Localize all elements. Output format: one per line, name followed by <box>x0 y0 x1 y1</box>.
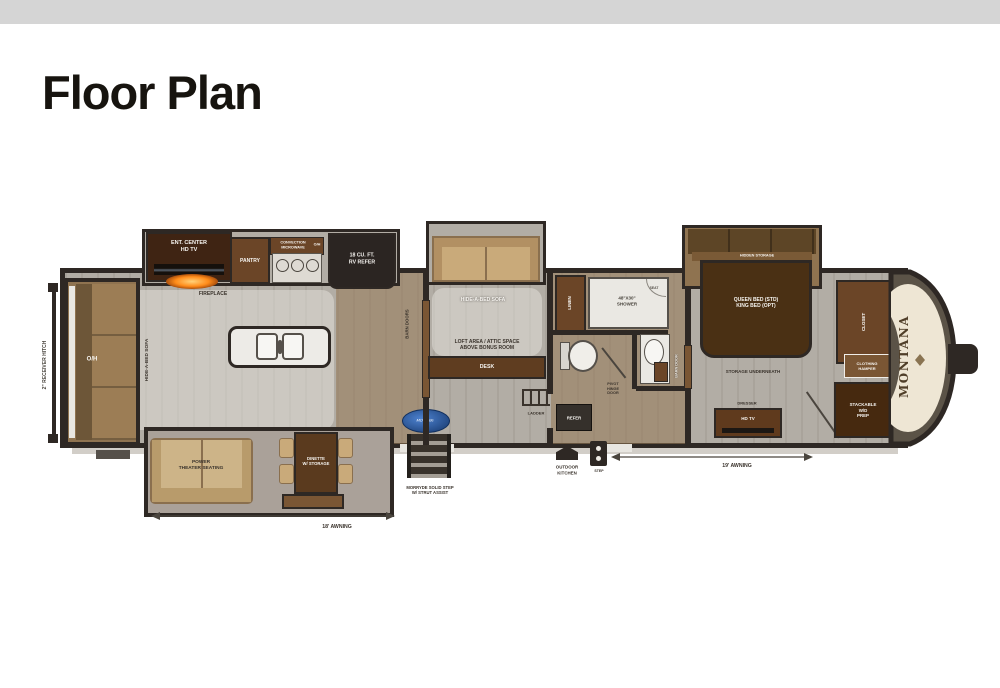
dinette-chair-3 <box>338 438 353 458</box>
shower-seat-label: SEAT <box>650 286 659 290</box>
dinette-label: DINETTE W/ STORAGE <box>303 456 330 467</box>
burner-2 <box>291 259 304 272</box>
front-cap-brand: MONTANA <box>897 315 911 398</box>
linen-label: LINEN <box>567 296 573 310</box>
bedroom-barn-door-panel <box>684 345 692 389</box>
hidden-storage-label: HIDDEN STORAGE <box>740 254 774 259</box>
bath-wall-vertical <box>632 333 637 389</box>
awning-right-arrow <box>610 450 814 464</box>
bonus-sofa-label: HIDE-A-BED SOFA <box>461 297 505 303</box>
dresser-tv-label: HD TV <box>741 416 755 422</box>
awning-left-arrow <box>150 509 396 523</box>
pantry-label: PANTRY <box>240 258 260 264</box>
awning-right-label: 19' AWNING <box>722 463 752 470</box>
dresser-label: DRESSER <box>737 401 756 406</box>
rear-bumper-end-bottom <box>48 434 58 443</box>
bonus-sofa-arm-right <box>530 238 538 280</box>
entry-step-dot-1 <box>596 446 601 451</box>
steps-label: MORRYDE SOLID STEP W/ STRUT ASSIST <box>406 485 453 496</box>
entry-steps-icon <box>407 434 451 478</box>
wd-prep-label: STACKABLE W/D PREP <box>850 402 877 419</box>
wall-living-bonus-bottom <box>423 398 429 445</box>
rear-overhead-label: O/H <box>87 356 98 364</box>
pivot-door-label: PIVOT HINGE DOOR <box>607 382 619 396</box>
storage-underneath-label: STORAGE UNDERNEATH <box>726 369 781 375</box>
burner-3 <box>306 259 319 272</box>
entry-step-dot-2 <box>596 456 601 461</box>
rear-slide-window <box>69 286 75 438</box>
vanity-cabinet <box>654 362 668 382</box>
bonus-barn-door-panel <box>422 300 430 398</box>
rear-sofa-label: HIDE-A-BED SOFA <box>145 339 151 382</box>
shower-label: 48"X30" SHOWER <box>617 295 637 306</box>
rear-bumper <box>52 286 56 440</box>
entry-step-label: STEP <box>594 469 603 473</box>
bed-wardrobe <box>688 229 816 254</box>
loft-ladder-icon <box>522 389 550 406</box>
dinette-chair-2 <box>279 464 294 484</box>
theater-arm-left <box>152 440 161 502</box>
wall-bonus-bath-bottom <box>547 428 553 445</box>
ent-center-label: ENT. CENTER HD TV <box>171 240 207 254</box>
top-bar <box>0 0 1000 24</box>
bedroom-barn-door-label: BARN DOOR <box>675 354 680 377</box>
rear-bumper-end-top <box>48 283 58 292</box>
outdoor-refer-label: REFER <box>567 415 581 420</box>
rear-sofa-cushions <box>92 284 136 440</box>
outdoor-kitchen-label: OUTDOOR KITCHEN <box>556 465 578 476</box>
desk-label: DESK <box>480 364 494 371</box>
floor-plan-diagram: Floor Plan 2" RECEIVER HITCH O/H HIDE-A-… <box>0 0 1000 688</box>
loft-label: LOFT AREA / ATTIC SPACE ABOVE BONUS ROOM <box>455 339 520 352</box>
refrigerator-label: 18 CU. FT. RV REFER <box>349 253 375 266</box>
hitch-pin <box>948 344 978 374</box>
ladder-label: LADDER <box>528 411 545 416</box>
clothing-hamper-label: CLOTHING HAMPER <box>857 361 878 371</box>
entry-step-icon <box>590 441 607 466</box>
front-cap: MONTANA <box>886 264 990 454</box>
burner-1 <box>276 259 289 272</box>
sink-right <box>282 333 304 360</box>
fireplace-icon <box>166 274 218 289</box>
theater-label: POWER THEATER SEATING <box>179 460 224 472</box>
dinette-chair-4 <box>338 464 353 484</box>
dresser <box>714 408 782 438</box>
dinette-bench <box>282 494 344 509</box>
bonus-sofa-seam <box>485 247 487 281</box>
landing-gear <box>96 450 130 459</box>
dresser-tv-screen <box>722 428 774 433</box>
bonus-sofa-arm-left <box>434 238 442 280</box>
toilet-bowl <box>568 340 598 372</box>
faucet <box>278 340 282 354</box>
barn-doors-label: BARN DOORS <box>404 309 409 338</box>
bath-wall-horizontal-2 <box>636 386 690 391</box>
awning-left-label: 18' AWNING <box>322 524 352 531</box>
closet-label: CLOSET <box>861 313 867 331</box>
receiver-hitch-label: 2" RECEIVER HITCH <box>42 341 48 390</box>
sink-left <box>256 333 278 360</box>
microwave-label: CONVECTION MICROWAVE <box>280 240 305 249</box>
theater-arm-right <box>242 440 251 502</box>
range-oh-label: O/H <box>314 243 321 248</box>
fireplace-label: FIREPLACE <box>199 291 227 297</box>
wall-bath-bed-bottom <box>685 389 691 445</box>
bonus-sofa-back <box>434 238 538 247</box>
page-title: Floor Plan <box>42 65 262 120</box>
dinette-chair-1 <box>279 438 294 458</box>
bed-label: QUEEN BED (STD) KING BED (OPT) <box>734 297 778 310</box>
theater-back <box>161 488 242 502</box>
